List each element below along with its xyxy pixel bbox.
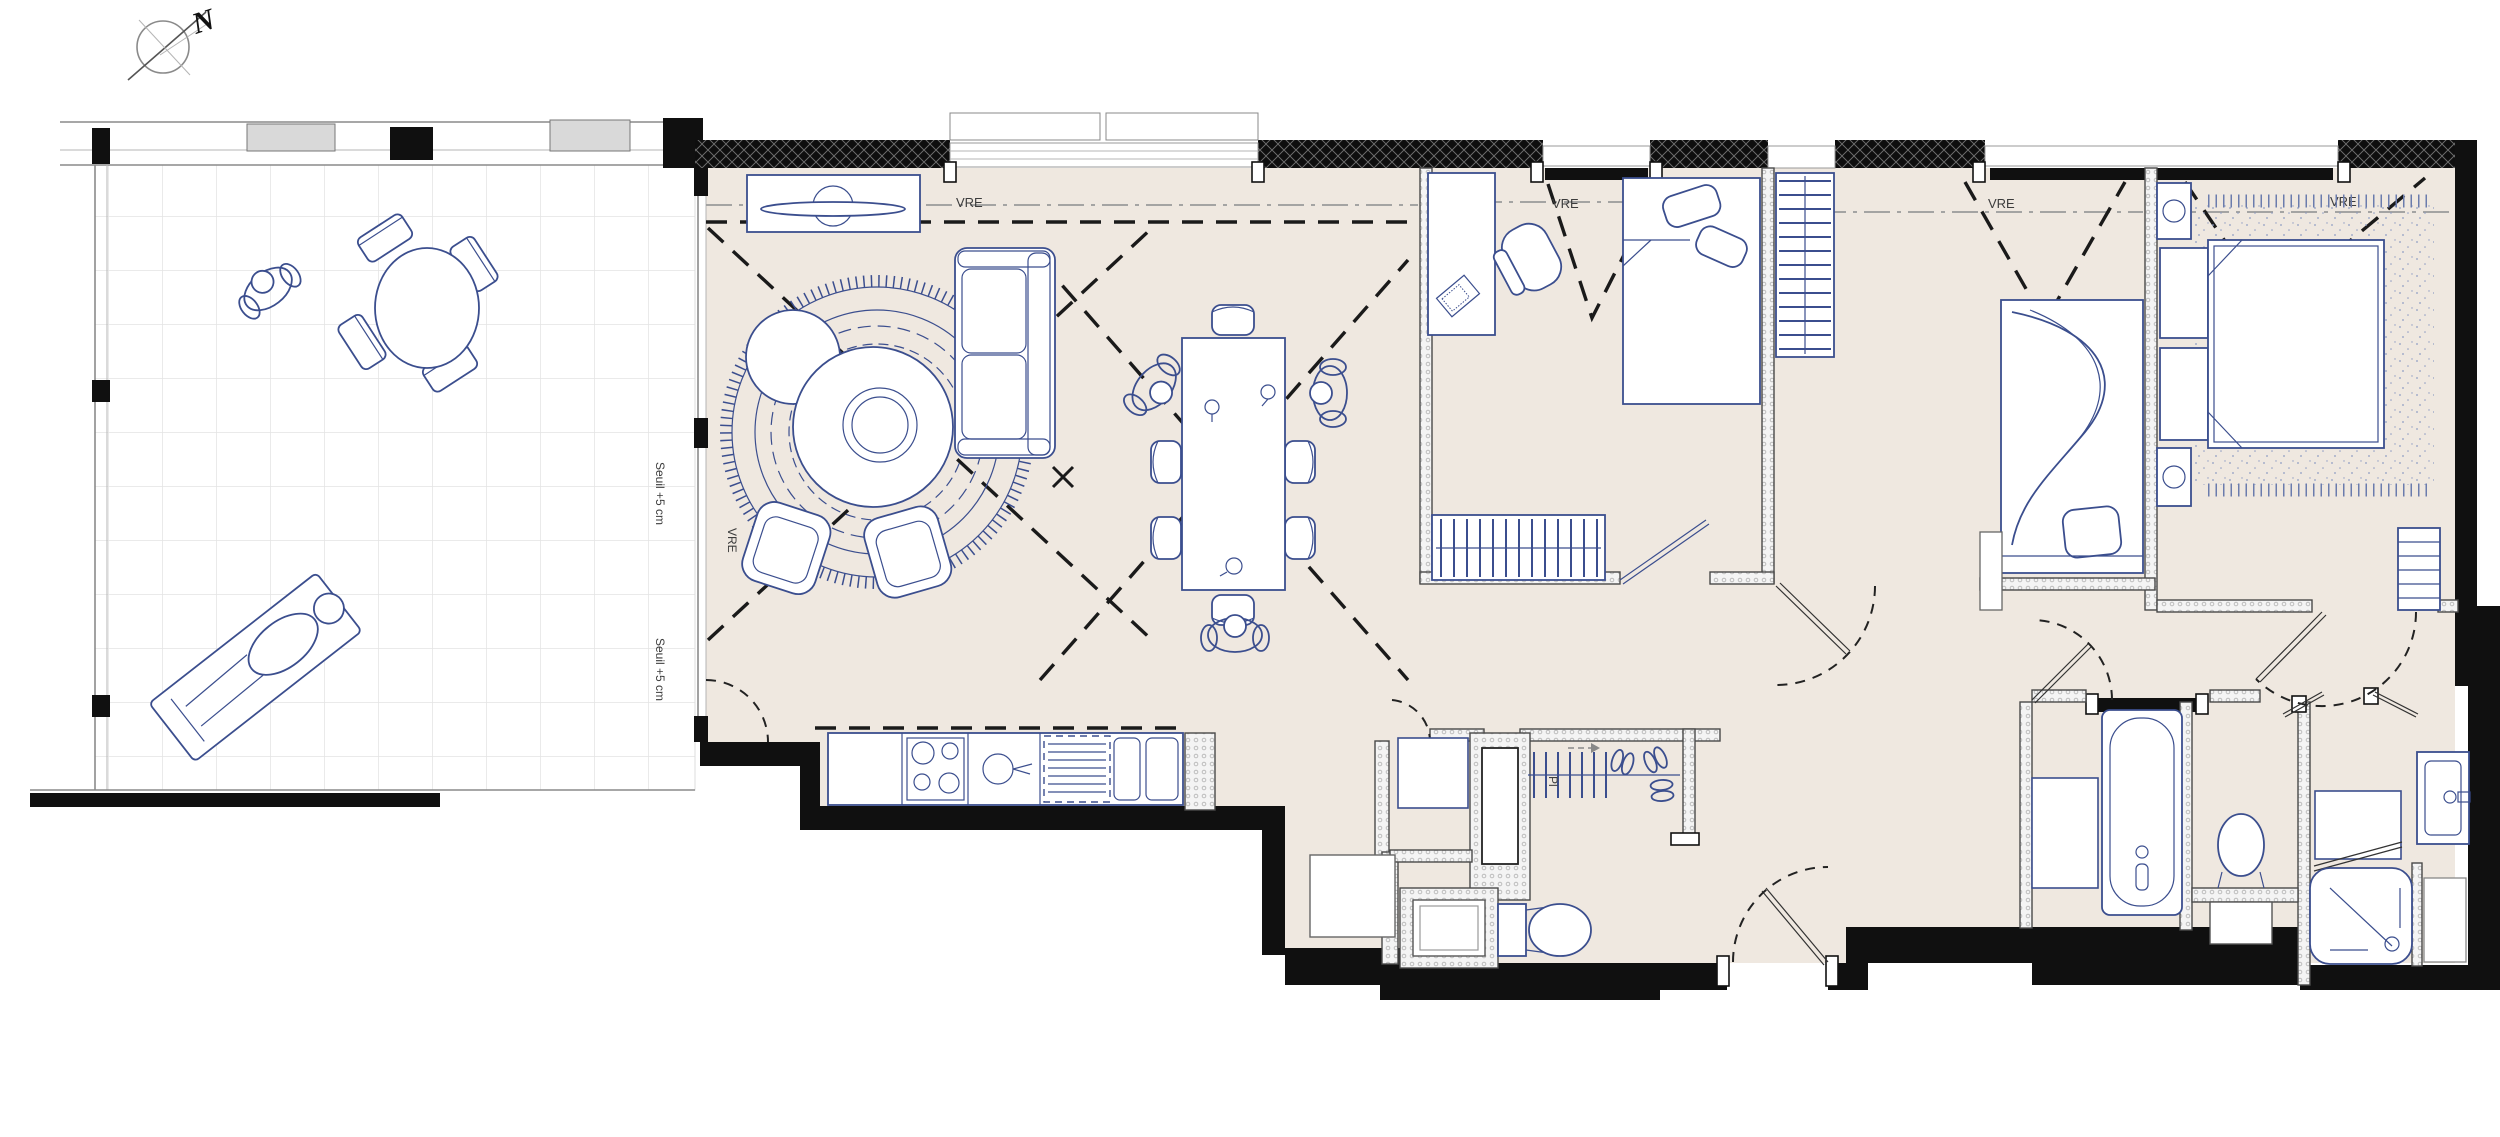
desk [1428,173,1495,335]
north-compass: N [128,2,220,80]
wc-cistern [2210,902,2272,944]
threshold-label-2: Seuil +5 cm [653,638,667,701]
floor-plan-canvas: Seuil +5 cm Seuil +5 cm N [0,0,2500,1137]
coffee-table [793,347,953,507]
terrace: Seuil +5 cm Seuil +5 cm [30,118,703,807]
shelf-unit [2398,528,2440,610]
facade-post [390,127,433,160]
washbasin [2417,752,2470,844]
duct-door [1482,748,1518,864]
wardrobe-hangers [1776,173,1834,357]
hall-cabinet [1398,738,1468,808]
nightstand [2157,448,2191,506]
wardrobe-bottom [1432,515,1605,580]
floor-plan-drawing: Seuil +5 cm Seuil +5 cm N [0,0,2500,1137]
label-vre-bedroom1: VRE [1552,196,1579,211]
dining-table [1182,338,1285,590]
kitchen-counter [828,733,1183,805]
washing-machine [2315,791,2401,859]
double-bed [2208,240,2384,448]
toilet [2218,814,2264,876]
water-heater-niche [2424,878,2466,962]
tv [761,202,905,216]
guest-wc [1498,904,1591,956]
sofa [955,248,1055,458]
cabinet [1980,532,2002,610]
label-vre-side: VRE [725,528,739,553]
label-vre-living: VRE [956,195,983,210]
north-label: N [187,2,220,41]
single-bed [1623,178,1760,404]
bathtub [2102,710,2182,915]
facade-panel [550,120,630,151]
balcony-edge [30,793,440,807]
entry-cabinet [1310,855,1395,937]
nightstand [2157,183,2191,239]
label-closet: Pl [1546,776,1560,787]
label-vre-bedroom2: VRE [1988,196,2015,211]
single-bed-2 [2001,300,2143,573]
living-window [950,143,1258,167]
bath-cabinet [2032,778,2098,888]
facade-panel [247,124,335,151]
kitchen [828,733,1183,805]
shower-tray [2310,868,2412,964]
terrace-round-table [375,248,479,368]
threshold-label-1: Seuil +5 cm [653,462,667,525]
